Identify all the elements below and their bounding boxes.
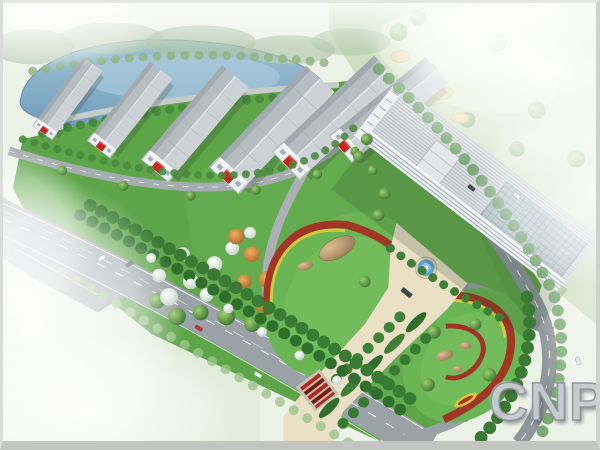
image-frame: CNPC [0,0,600,450]
rendering-canvas [3,3,596,441]
aerial-rendering: CNPC [3,3,596,441]
